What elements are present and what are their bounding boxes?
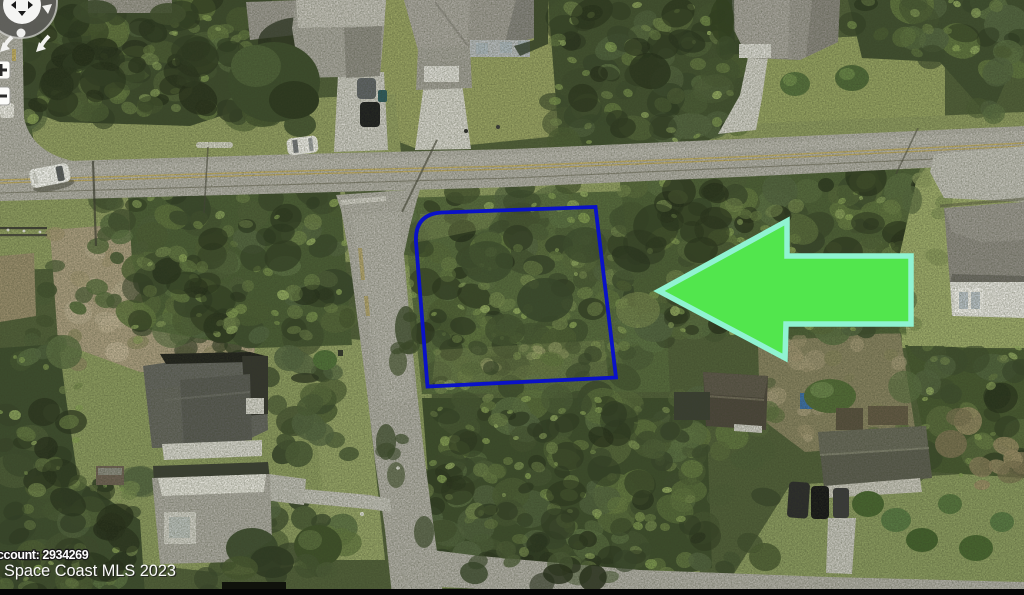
svg-text:ccount: 2934269: ccount: 2934269	[0, 548, 89, 562]
svg-text:Space Coast MLS 2023: Space Coast MLS 2023	[4, 562, 176, 580]
